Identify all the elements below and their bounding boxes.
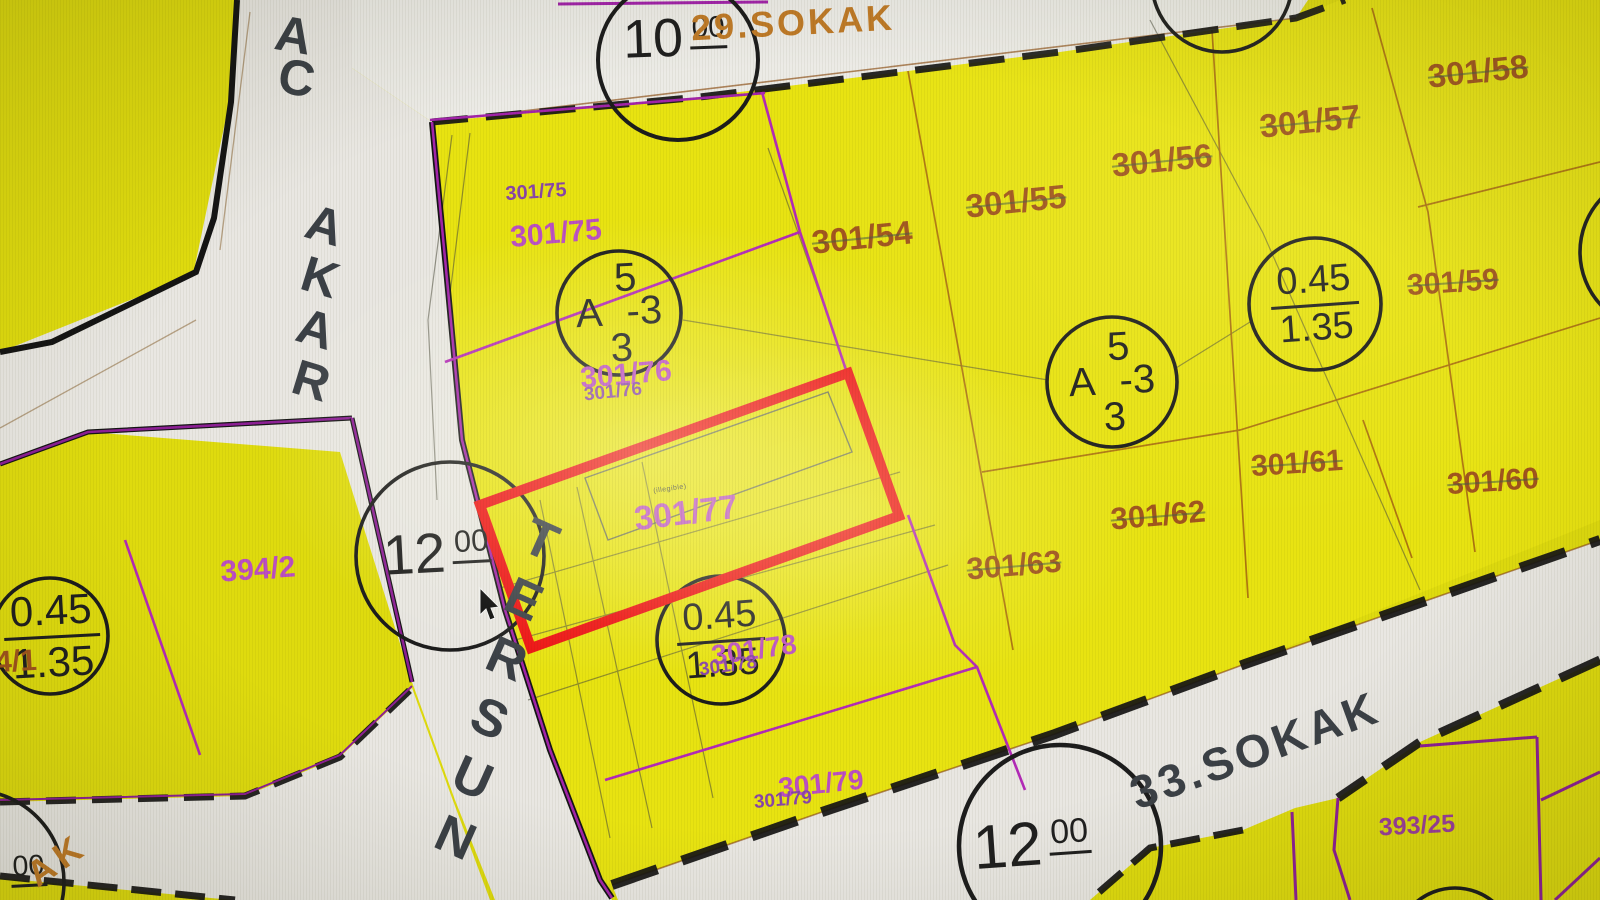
- road-width-sup: 00: [451, 525, 491, 564]
- street-label-vertical-upper: AC: [260, 12, 330, 102]
- road-width-value: 10: [622, 11, 684, 67]
- zone-marker-left: 5 A -3 3: [573, 256, 665, 370]
- road-width-marker-left: 1200: [382, 522, 492, 584]
- zone-marker-right: 5 A -3 3: [1066, 325, 1158, 439]
- map-canvas[interactable]: [0, 0, 1600, 900]
- parcel-label-393-25: 393/25: [1378, 812, 1456, 841]
- road-width-value: 12: [382, 525, 447, 584]
- ratio-numerator: 0.45: [1268, 256, 1359, 310]
- road-width-value: 12: [971, 813, 1044, 880]
- parcel-label-301-60: 301/60: [1446, 464, 1540, 500]
- zone-left-value: A: [1068, 362, 1097, 403]
- zone-left-value: A: [575, 293, 604, 334]
- parcel-label-301-59: 301/59: [1406, 265, 1500, 301]
- zone-bottom-value: 3: [1103, 396, 1127, 437]
- cadastral-map[interactable]: 29.SOKAK 33.SOKAK AK AC AKAR TERSUN 1000…: [0, 0, 1600, 900]
- parcel-label-301-61: 301/61: [1250, 446, 1344, 482]
- ratio-denominator: 1.35: [1278, 304, 1355, 352]
- ratio-marker-right: 0.45 1.35: [1268, 256, 1362, 352]
- parcel-label-394-2: 394/2: [220, 552, 297, 587]
- parcel-label-301-75-small: 301/75: [505, 180, 567, 204]
- parcel-label-301-62: 301/62: [1109, 495, 1206, 534]
- parcel-label-301-79-small: 301/79: [753, 788, 813, 812]
- road-width-marker-bottom: 1200: [971, 810, 1093, 880]
- road-width-sup: 00: [1047, 813, 1092, 856]
- parcel-label-301-63: 301/63: [965, 545, 1062, 584]
- parcel-label-partial-left-edge: 4/1: [0, 646, 38, 678]
- ratio-numerator: 0.45: [2, 584, 100, 641]
